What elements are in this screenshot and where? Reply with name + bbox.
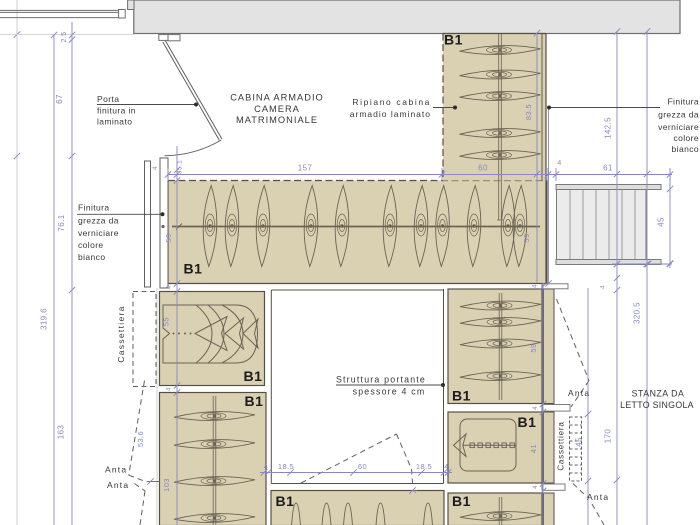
svg-text:59: 59 (522, 233, 531, 242)
svg-text:B1: B1 (452, 493, 471, 509)
svg-text:B1: B1 (244, 368, 263, 384)
svg-text:319.6: 319.6 (40, 308, 49, 330)
svg-text:Cassettiera: Cassettiera (557, 421, 566, 470)
svg-text:Finitura: Finitura (667, 97, 699, 107)
svg-text:18.5: 18.5 (278, 462, 294, 471)
svg-text:4: 4 (167, 285, 173, 289)
svg-text:4: 4 (533, 284, 539, 288)
svg-text:2.5: 2.5 (61, 32, 68, 43)
svg-text:4: 4 (152, 166, 159, 170)
svg-text:B1: B1 (184, 261, 203, 277)
svg-text:170: 170 (604, 429, 613, 444)
svg-text:83.5: 83.5 (524, 104, 533, 120)
svg-text:grezza da: grezza da (78, 215, 119, 225)
svg-text:142.5: 142.5 (604, 117, 613, 139)
svg-text:103: 103 (162, 478, 171, 492)
svg-text:colore: colore (78, 240, 104, 250)
svg-text:45: 45 (657, 217, 666, 227)
svg-text:finitura in: finitura in (97, 106, 136, 116)
svg-text:4: 4 (167, 387, 173, 391)
svg-text:60: 60 (358, 462, 367, 471)
svg-text:B1: B1 (452, 388, 471, 404)
svg-text:18.5: 18.5 (416, 462, 432, 471)
svg-text:60: 60 (478, 164, 488, 173)
svg-text:4: 4 (533, 485, 539, 489)
svg-text:CAMERA: CAMERA (254, 104, 300, 114)
svg-text:163: 163 (57, 425, 66, 440)
svg-text:Porta: Porta (97, 94, 119, 104)
svg-text:grezza da: grezza da (658, 110, 699, 120)
svg-text:verniciare: verniciare (658, 122, 699, 132)
svg-text:verniciare: verniciare (78, 228, 119, 238)
svg-text:45: 45 (575, 437, 584, 447)
svg-text:4: 4 (412, 489, 419, 493)
svg-text:53.6: 53.6 (136, 431, 145, 447)
svg-text:4: 4 (444, 464, 448, 471)
svg-text:Anta: Anta (105, 465, 127, 475)
svg-text:Anta: Anta (568, 388, 590, 398)
svg-text:Cassettiera: Cassettiera (116, 305, 126, 362)
svg-text:157: 157 (298, 164, 313, 173)
svg-text:MATRIMONIALE: MATRIMONIALE (236, 115, 318, 125)
svg-text:Ripiano cabina: Ripiano cabina (352, 97, 431, 107)
svg-text:CABINA ARMADIO: CABINA ARMADIO (230, 93, 324, 103)
svg-text:61: 61 (603, 164, 613, 173)
svg-text:4: 4 (533, 406, 539, 410)
svg-text:35.1: 35.1 (177, 160, 184, 174)
svg-text:320.5: 320.5 (633, 302, 642, 324)
svg-text:Anta: Anta (107, 480, 129, 490)
svg-text:Anta: Anta (587, 492, 609, 502)
svg-text:B1: B1 (276, 493, 295, 509)
svg-text:B1: B1 (444, 32, 463, 48)
svg-text:Struttura portante: Struttura portante (336, 375, 426, 385)
svg-text:4: 4 (264, 464, 268, 471)
svg-text:B1: B1 (245, 393, 264, 409)
svg-text:armadio laminato: armadio laminato (350, 109, 431, 119)
svg-text:spessore 4 cm: spessore 4 cm (353, 387, 426, 397)
svg-text:Finitura: Finitura (78, 203, 110, 213)
svg-text:67: 67 (55, 94, 64, 104)
svg-text:4: 4 (600, 285, 607, 289)
svg-text:bianco: bianco (672, 144, 699, 154)
svg-text:55: 55 (162, 317, 171, 326)
svg-text:LETTO SINGOLA: LETTO SINGOLA (620, 400, 694, 410)
svg-text:41: 41 (529, 444, 538, 453)
svg-text:bianco: bianco (78, 252, 105, 262)
svg-text:4: 4 (557, 160, 561, 167)
svg-text:STANZA DA: STANZA DA (632, 389, 685, 399)
svg-text:59: 59 (529, 343, 538, 352)
svg-text:59: 59 (164, 233, 173, 242)
svg-text:colore: colore (673, 133, 699, 143)
svg-text:laminato: laminato (97, 117, 132, 127)
svg-text:76.1: 76.1 (57, 214, 66, 231)
svg-text:B1: B1 (518, 414, 537, 430)
